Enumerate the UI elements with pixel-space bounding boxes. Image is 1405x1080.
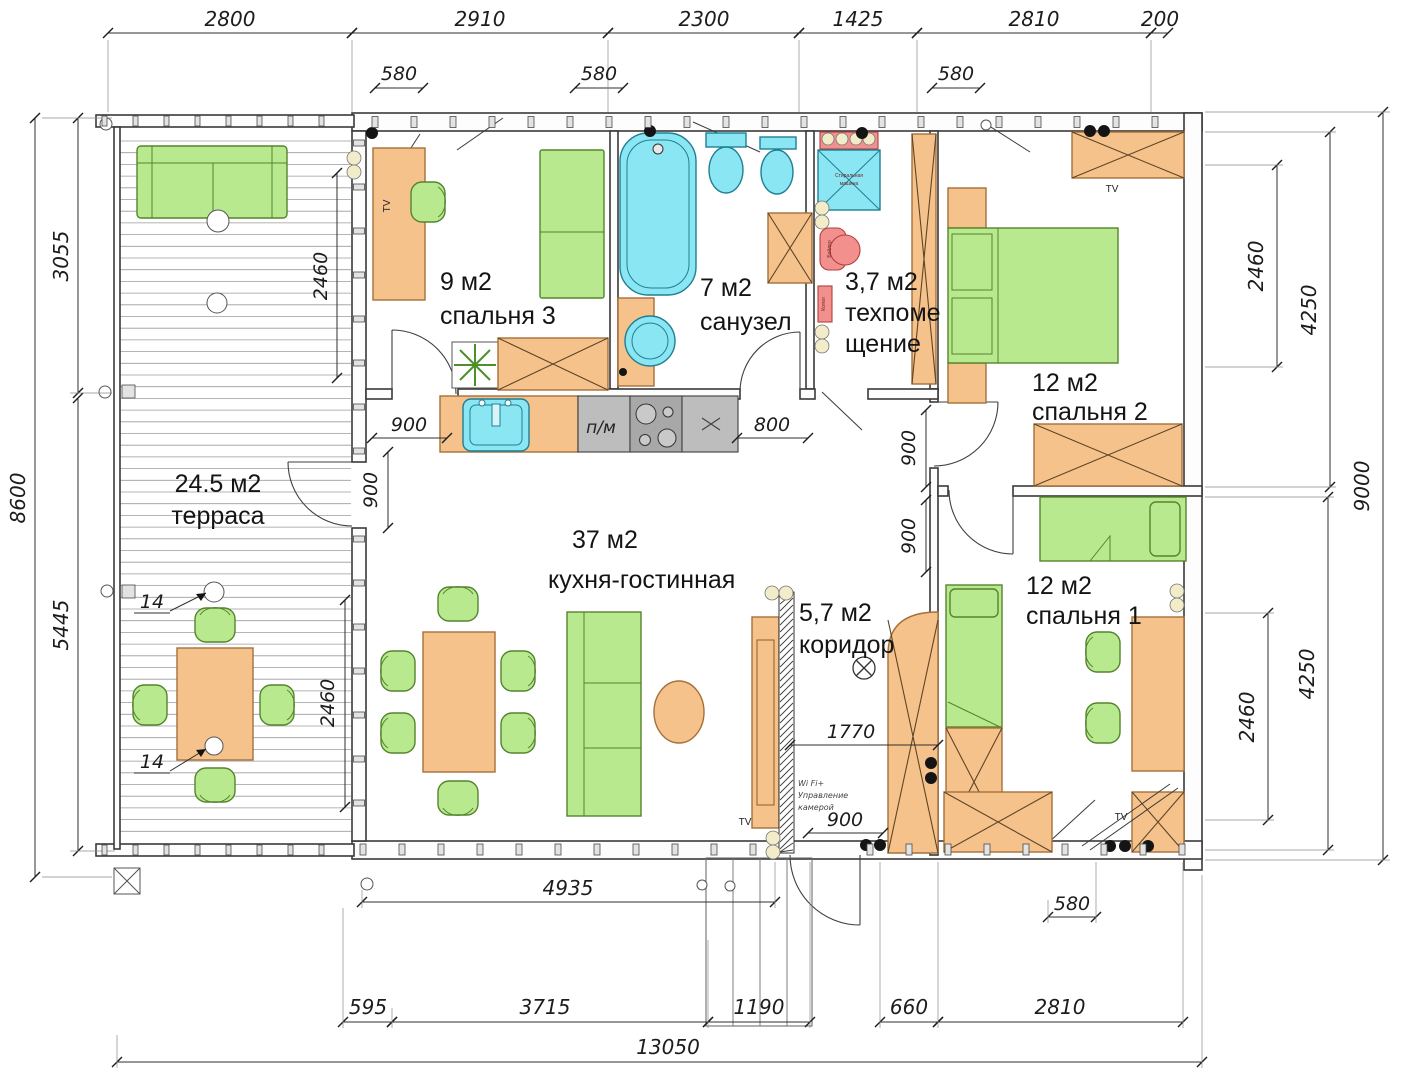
bedroom2-area: 12 м2	[1032, 369, 1098, 397]
window-post	[102, 845, 107, 855]
valve-icon	[815, 201, 829, 215]
window-post	[606, 117, 612, 128]
callout-14: 14	[140, 751, 164, 773]
dim-terrace-door-900: 900	[360, 472, 382, 508]
chair	[438, 781, 478, 815]
door-bedroom2	[934, 402, 998, 466]
window-post	[354, 448, 365, 454]
window-post	[477, 844, 483, 855]
cup-icon	[836, 133, 848, 145]
window-post	[372, 117, 378, 128]
wall-bedrooms-a	[938, 486, 948, 496]
dishwasher-label: п/м	[586, 418, 616, 438]
door-terrace	[288, 462, 352, 526]
window-post	[354, 624, 365, 630]
window-post	[226, 845, 231, 855]
bedroom3-area: 9 м2	[440, 268, 492, 296]
burner	[663, 407, 673, 417]
faucet-icon	[505, 400, 511, 406]
dim-bottom-13050: 13050	[636, 1035, 700, 1059]
bedroom1-area: 12 м2	[1026, 572, 1092, 600]
dim-bedroom3-900: 900	[391, 414, 427, 436]
window-post	[762, 117, 768, 128]
window-post	[840, 117, 846, 128]
window-post	[906, 844, 912, 855]
window-post	[354, 316, 365, 322]
bathtub	[620, 133, 696, 295]
grid-bubble	[697, 880, 707, 890]
window-post	[133, 116, 138, 126]
window-post	[438, 844, 444, 855]
dim-corridor-1770: 1770	[827, 721, 875, 743]
handle-dot	[874, 839, 886, 851]
dim-wall-900a: 900	[898, 430, 920, 466]
chair	[381, 651, 415, 691]
chair	[195, 768, 235, 802]
window-post	[750, 844, 756, 855]
callout-target	[205, 737, 223, 755]
corridor-area: 5,7 м2	[799, 599, 872, 627]
window-post	[399, 844, 405, 855]
window-post	[288, 845, 293, 855]
window-post	[354, 536, 365, 542]
bedroom2-name: спальня 2	[1032, 398, 1148, 426]
dim-580: 580	[381, 63, 417, 85]
valve-icon	[766, 845, 780, 859]
plant-icon	[454, 344, 496, 386]
living-furniture	[381, 587, 704, 816]
window-post	[450, 117, 456, 128]
window-post	[195, 116, 200, 126]
boiler-tank	[830, 235, 860, 265]
window-post	[354, 668, 365, 674]
burner	[640, 435, 651, 446]
curtain-dot	[856, 127, 868, 139]
wall-north-c	[800, 389, 815, 399]
wall-terrace-house-upper	[352, 131, 366, 462]
window-post	[354, 580, 365, 586]
dim-top-1425: 1425	[833, 7, 884, 31]
window-post	[1113, 117, 1119, 128]
dim-bottom-4935: 4935	[543, 876, 594, 900]
tv-unit	[752, 617, 779, 828]
toilet-tank	[706, 133, 746, 147]
window-post	[594, 844, 600, 855]
dim-top-2810: 2810	[1009, 7, 1060, 31]
dim-bottom-595: 595	[349, 995, 387, 1019]
window-post	[1140, 844, 1146, 855]
dim-terrace-2460: 2460	[310, 252, 332, 300]
dim-kitchen-800: 800	[754, 414, 790, 436]
ceiling-light-icon	[853, 657, 875, 679]
door-bathroom	[740, 332, 800, 392]
chair	[195, 608, 235, 642]
bedroom2-furniture: TV	[948, 132, 1184, 486]
window-sash-icon	[1048, 800, 1095, 843]
valve-icon	[766, 831, 780, 845]
bathroom-fixtures	[618, 133, 812, 386]
bedroom1-name: спальня 1	[1026, 602, 1142, 630]
wifi-note-1: Wi Fi+	[798, 779, 824, 788]
faucet-body	[492, 404, 500, 426]
dim-left-5445: 5445	[49, 600, 73, 651]
window-post	[723, 117, 729, 128]
window-post	[319, 845, 324, 855]
kitchen-counter: п/м	[440, 396, 738, 452]
grid-bubble	[361, 878, 373, 890]
window-post	[1035, 117, 1041, 128]
heater-label: Котел	[821, 297, 827, 310]
dim-580: 580	[581, 63, 617, 85]
window-post	[257, 116, 262, 126]
handle-dot	[925, 772, 937, 784]
door-entrance	[790, 855, 860, 925]
dining-table	[423, 632, 495, 772]
terrace-post	[122, 585, 135, 598]
grid-bubble	[725, 881, 735, 891]
entrance-porch	[114, 858, 812, 1026]
tv-label: TV	[1115, 812, 1128, 823]
door-bedroom3	[392, 330, 456, 394]
chair	[438, 587, 478, 621]
chair	[411, 182, 445, 222]
bedroom3-name: спальня 3	[440, 302, 556, 330]
grid-bubble	[981, 120, 991, 130]
door-techroom-leaf	[822, 392, 862, 430]
window-post	[957, 117, 963, 128]
window-post	[996, 117, 1002, 128]
nightstand	[948, 188, 986, 228]
chair	[260, 685, 294, 725]
callout-14: 14	[140, 591, 164, 613]
window-post	[288, 116, 293, 126]
window-post	[945, 844, 951, 855]
callout-target	[204, 582, 224, 602]
washer-label-2: машина	[840, 181, 859, 187]
dim-top-2300: 2300	[679, 7, 730, 31]
dim-terrace-2460-lower: 2460	[317, 679, 339, 727]
chair	[133, 685, 167, 725]
wall-terrace-house-lower	[352, 528, 366, 841]
window-post	[1023, 844, 1029, 855]
sofa	[567, 612, 641, 816]
stool	[207, 293, 227, 313]
window-post	[354, 140, 365, 146]
valve-icon	[347, 151, 361, 165]
window-post	[319, 116, 324, 126]
window-post	[133, 845, 138, 855]
handle-dot	[1119, 840, 1131, 852]
dim-580: 580	[938, 63, 974, 85]
valve-icon	[1170, 584, 1184, 598]
window-post	[411, 117, 417, 128]
wall-bedroom3-bath	[610, 131, 618, 389]
window-post	[555, 844, 561, 855]
toilet	[709, 147, 743, 193]
dim-right-2460: 2460	[1244, 241, 1268, 292]
dim-bottom-1190: 1190	[734, 995, 785, 1019]
tv-label: TV	[1106, 184, 1119, 195]
window-post	[684, 117, 690, 128]
window-post	[354, 756, 365, 762]
living-name: кухня-гостинная	[548, 566, 735, 594]
terrace-area: 24.5 м2	[175, 470, 262, 498]
dim-left-3055: 3055	[49, 231, 73, 282]
dim-top-2910: 2910	[455, 7, 506, 31]
handle-dot	[619, 368, 627, 376]
terrace-sofa	[137, 146, 287, 218]
wall-bedrooms-b	[1013, 486, 1202, 496]
valve-icon	[347, 165, 361, 179]
handle-dot	[925, 757, 937, 769]
chair	[501, 713, 535, 753]
window-post	[195, 845, 200, 855]
dim-top-2800: 2800	[205, 7, 256, 31]
window-post	[1101, 844, 1107, 855]
burner	[636, 404, 656, 424]
window-post	[489, 117, 495, 128]
bed-double	[948, 228, 1118, 363]
living-area: 37 м2	[572, 526, 638, 554]
bidet-tank	[760, 137, 796, 149]
valve-icon	[815, 215, 829, 229]
chair	[501, 651, 535, 691]
dim-bottom-660: 660	[890, 995, 928, 1019]
dim-bottom-3715: 3715	[520, 995, 571, 1019]
bathroom-area: 7 м2	[700, 274, 752, 302]
window-post	[164, 116, 169, 126]
window-post	[645, 117, 651, 128]
valve-icon	[779, 586, 793, 600]
desk	[373, 148, 425, 300]
terrace-name: терраса	[171, 502, 264, 530]
window-post	[918, 117, 924, 128]
window-post	[711, 844, 717, 855]
window-post	[360, 844, 366, 855]
window-post	[1179, 844, 1185, 855]
corridor-name: коридор	[799, 631, 894, 659]
dim-bottom-580: 580	[1054, 893, 1090, 915]
valve-icon	[815, 339, 829, 353]
desk	[1132, 617, 1184, 771]
bathroom-name: санузел	[700, 308, 792, 336]
tech-name-2: щение	[845, 330, 921, 358]
tech-name-1: техпоме	[845, 299, 941, 327]
curtain-dot	[1098, 125, 1110, 137]
terrace-left-edge	[114, 127, 120, 849]
dim-wall-900b: 900	[898, 518, 920, 554]
window-post	[984, 844, 990, 855]
window-post	[528, 117, 534, 128]
grid-bubble	[99, 386, 111, 398]
window-post	[672, 844, 678, 855]
grid-bubble	[101, 585, 113, 597]
window-post	[354, 712, 365, 718]
door-bedroom1	[949, 490, 1013, 554]
pillow	[950, 589, 998, 617]
dim-right-4250-lower: 4250	[1295, 649, 1319, 700]
window-post	[879, 117, 885, 128]
bidet	[761, 150, 793, 194]
burner	[658, 429, 676, 447]
curtain-dot	[366, 127, 378, 139]
wall-north-a	[366, 389, 392, 399]
window-post	[354, 800, 365, 806]
dim-right-4250: 4250	[1297, 285, 1321, 336]
window-post	[164, 845, 169, 855]
valve-icon	[815, 325, 829, 339]
dim-left-8600: 8600	[6, 473, 30, 524]
dim-corridor-900: 900	[827, 809, 863, 831]
window-post	[354, 360, 365, 366]
dim-top-200: 200	[1141, 7, 1179, 31]
window-post	[633, 844, 639, 855]
window-post	[226, 116, 231, 126]
window-post	[567, 117, 573, 128]
window-post	[354, 228, 365, 234]
boiler-label: Бойлер	[826, 240, 833, 258]
nightstand	[948, 363, 986, 403]
coffee-table	[654, 681, 704, 743]
floor-plan-drawing: Стиральная машина Бойлер Котел TV п/м	[0, 0, 1405, 1080]
tv-label: TV	[739, 817, 752, 828]
chair	[1086, 632, 1120, 672]
floor-plan-page: Стиральная машина Бойлер Котел TV п/м	[0, 0, 1405, 1080]
faucet-icon	[479, 400, 485, 406]
dim-right-9000: 9000	[1350, 461, 1374, 512]
bed-single	[540, 150, 604, 298]
window-post	[102, 116, 107, 126]
window-post	[516, 844, 522, 855]
tv-label: TV	[382, 199, 393, 212]
washer-label-1: Стиральная	[835, 173, 863, 179]
window-post	[1074, 117, 1080, 128]
window-post	[1152, 117, 1158, 128]
curtain-dot	[1084, 125, 1096, 137]
terrace-post	[122, 385, 135, 398]
valve-icon	[765, 586, 779, 600]
dim-bottom-2810: 2810	[1035, 995, 1086, 1019]
cup-icon	[822, 133, 834, 145]
wifi-note-2: Управление	[798, 791, 848, 800]
window-post	[867, 844, 873, 855]
window-post	[257, 845, 262, 855]
wall-north-d	[868, 389, 938, 399]
window-post	[1062, 844, 1068, 855]
dim-right-2460-lower: 2460	[1235, 692, 1259, 743]
tech-area: 3,7 м2	[845, 268, 918, 296]
bathtub-drain-icon	[653, 144, 663, 154]
side-table	[207, 210, 229, 232]
window-post	[801, 117, 807, 128]
valve-icon	[1170, 598, 1184, 612]
window-post	[354, 184, 365, 190]
window-post	[354, 404, 365, 410]
pillow	[1150, 502, 1180, 556]
chair	[1086, 703, 1120, 743]
window-post	[354, 272, 365, 278]
chair	[381, 713, 415, 753]
